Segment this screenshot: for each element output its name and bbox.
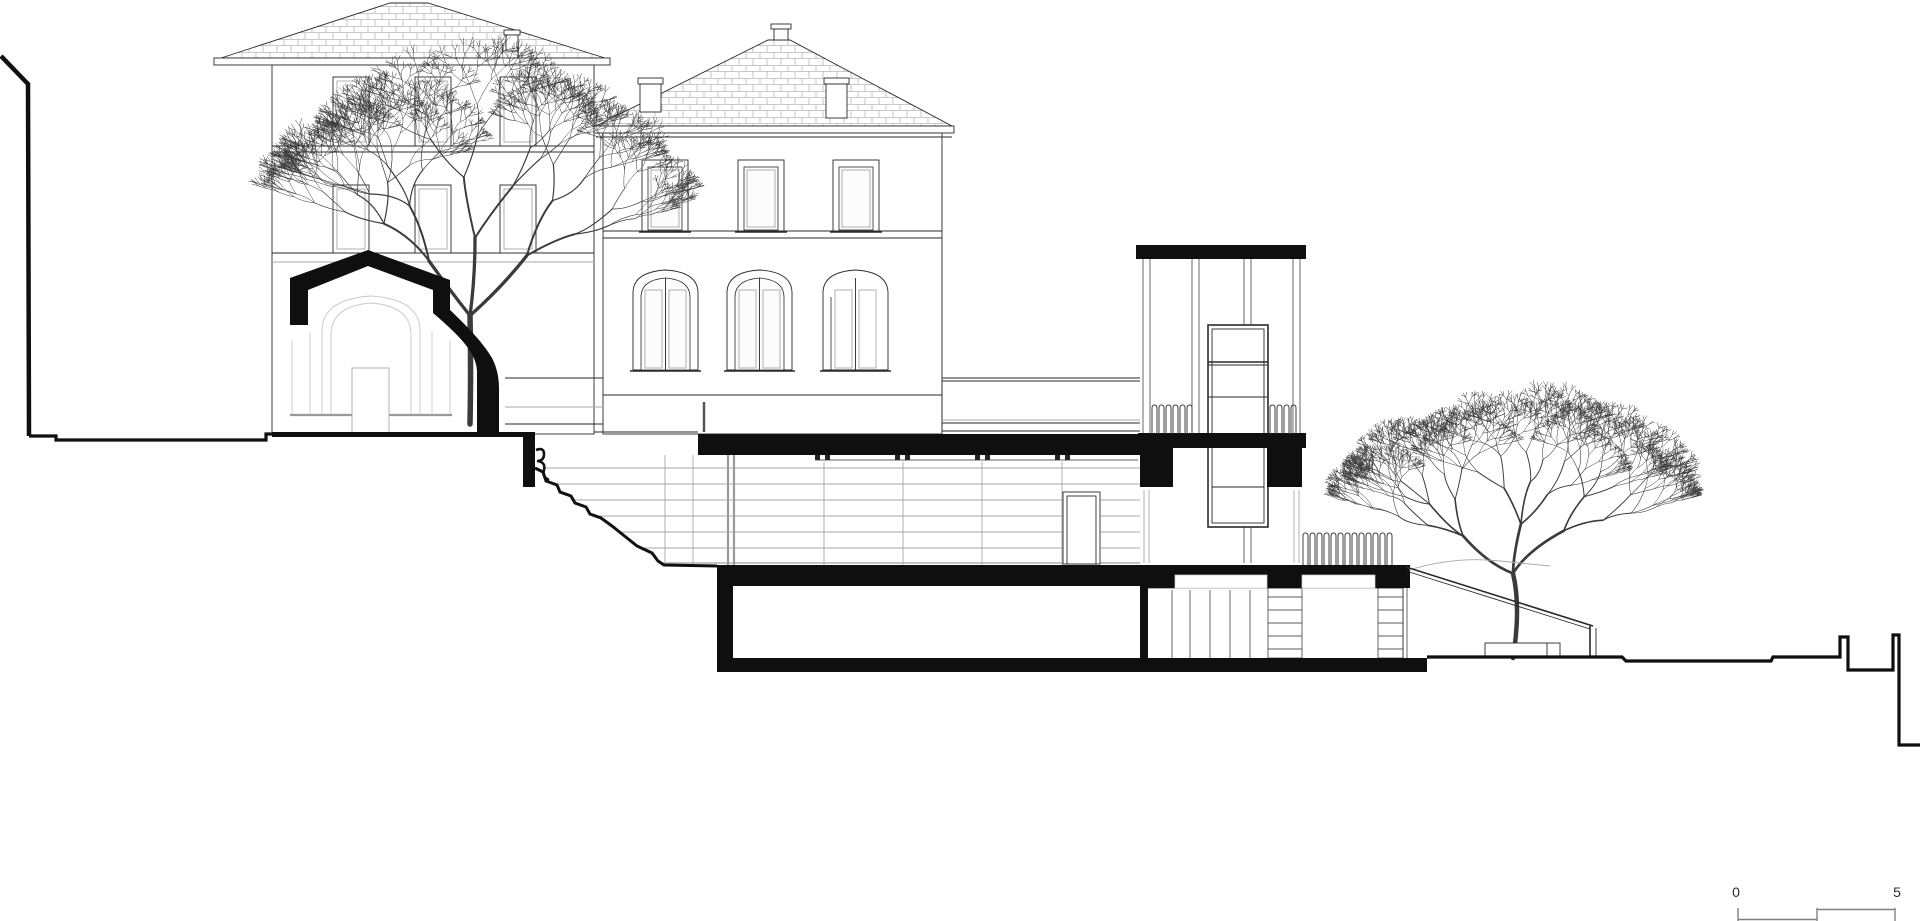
bare-tree-right <box>1324 380 1704 658</box>
tower-basement-rooms <box>1148 588 1407 658</box>
track-brackets <box>815 455 1070 460</box>
site-section-drawing: 0 5 <box>0 0 1920 921</box>
planter <box>1485 643 1560 657</box>
villa-left-chimney <box>638 78 663 84</box>
scale-bar: 0 5 <box>1732 884 1901 921</box>
underground-door <box>1063 492 1100 564</box>
excavation-slope <box>535 468 717 566</box>
villa-eave <box>594 126 954 133</box>
scale-end-label: 5 <box>1893 884 1901 900</box>
glass-partition-section <box>728 455 734 565</box>
left-building-chimney <box>504 30 520 35</box>
villa-right-chimney <box>824 78 849 84</box>
tower-structure <box>1143 259 1300 563</box>
retaining-post <box>523 432 535 487</box>
villa-ridge-chimney <box>771 24 791 29</box>
villa-upper-windows <box>639 160 882 232</box>
left-boundary-wall <box>1 56 276 440</box>
tower-floor-band <box>1138 433 1306 448</box>
tower-roof-cap <box>1136 245 1306 259</box>
slope-squiggle <box>536 449 549 480</box>
garden-wall <box>942 378 1140 432</box>
floor-slab <box>698 434 1140 455</box>
banded-retaining-wall <box>540 468 1140 563</box>
ground-slab-left <box>272 432 523 437</box>
basement-left-wall <box>717 565 733 672</box>
terrace-slab <box>717 565 1140 586</box>
vault-door <box>352 368 389 434</box>
boundary-wall-section-line <box>1 56 29 436</box>
left-ground-line <box>29 434 276 440</box>
basement-floor-slab <box>717 658 1427 672</box>
left-building <box>214 3 610 434</box>
elevator-cab-section <box>1208 325 1268 527</box>
scale-start-label: 0 <box>1732 884 1740 900</box>
scale-bar-lines <box>1738 908 1895 921</box>
right-terrain <box>1406 560 1920 745</box>
villa-arched-windows <box>630 270 891 371</box>
